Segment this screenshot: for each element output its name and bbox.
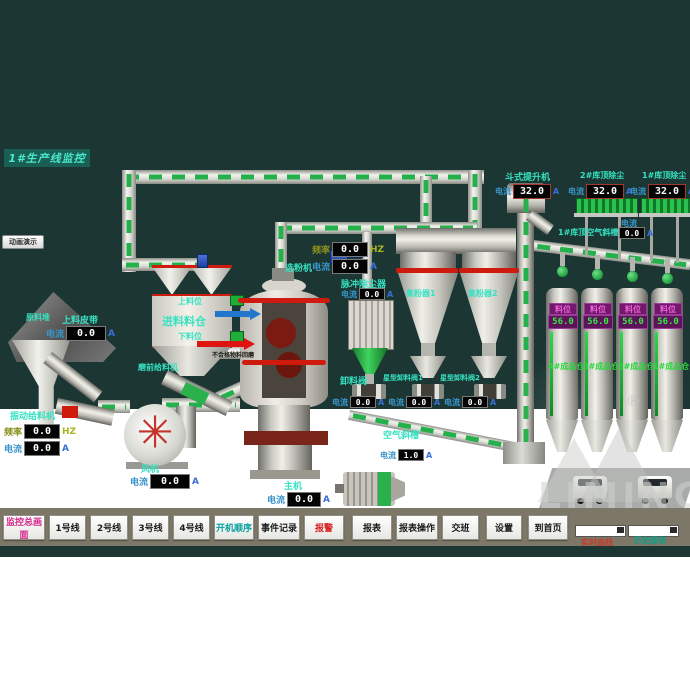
freq-value: 0.0 — [24, 424, 60, 439]
silo-inlet-valve — [557, 266, 568, 277]
silo-level-bar — [620, 332, 623, 416]
hmi-screenshot: 1#生产线监控 动画演示 原料堆 上料皮带 电流 0.0 A 振动给料机 频率 … — [0, 0, 690, 690]
main-motor-band — [378, 472, 391, 506]
silo-level-value: 56.0 — [548, 315, 578, 329]
current-value: 0.0 — [24, 441, 60, 456]
leg — [676, 217, 679, 263]
cyclone-manifold — [396, 228, 516, 254]
star-valve1-label: 星型卸料阀1 — [383, 373, 423, 383]
toolbar-button-shift-change[interactable]: 交班 — [442, 515, 479, 540]
realtime-curve-select[interactable] — [575, 525, 626, 537]
stem — [665, 259, 670, 273]
mill-roller — [266, 318, 296, 348]
current-label: 电流 — [388, 397, 404, 408]
unit-a: A — [108, 329, 115, 339]
mill-pedestal — [258, 445, 312, 471]
mill-foot — [250, 470, 320, 479]
cyclone2-label: 集粉器2 — [468, 288, 498, 299]
silo-level-label: 料位 — [549, 303, 577, 315]
freq-value: 0.0 — [332, 242, 368, 257]
toolbar-button-line2[interactable]: 2号线 — [90, 515, 128, 540]
discharge-valve-label: 卸料阀 — [340, 374, 367, 387]
material-pile-label: 原料堆 — [26, 312, 50, 323]
unit-a: A — [434, 398, 440, 407]
main-motor-shaft — [335, 484, 344, 493]
toolbar-button-alarm[interactable]: 报警 — [304, 515, 344, 540]
unit-a: A — [387, 290, 393, 299]
collector-base — [574, 213, 638, 217]
silo-inlet-valve — [627, 271, 638, 282]
stem — [482, 343, 496, 356]
leg — [650, 217, 653, 261]
truck — [573, 476, 607, 504]
current-value: 0.0 — [332, 259, 368, 274]
current-value: 0.0 — [150, 474, 190, 489]
silo-level-bar — [655, 332, 658, 416]
bin-rim — [152, 265, 232, 268]
silo-level-bar — [550, 332, 553, 416]
unit-a: A — [378, 398, 384, 407]
current-label: 电流 — [341, 289, 357, 300]
toolbar-button-startup-seq[interactable]: 开机顺序 — [214, 515, 254, 540]
mill-roller — [276, 352, 302, 378]
unit-a: A — [647, 229, 653, 238]
classifier-current-row: 电流 0.0 A — [312, 259, 377, 274]
mill-base-red — [244, 431, 328, 445]
vibrating-feeder-label: 振动给料机 — [10, 409, 55, 422]
unit-a: A — [370, 262, 377, 272]
silo-top-air-chute-current-row: 0.0 A — [619, 227, 653, 239]
silo-name: 3#成品仓 — [583, 361, 619, 372]
unit-a: A — [323, 495, 330, 505]
silo-level-value: 56.0 — [618, 315, 648, 329]
current-label: 电流 — [568, 186, 584, 197]
air-chute-label: 空气斜槽 — [383, 428, 419, 441]
current-label: 电流 — [130, 475, 148, 488]
silo-level-value: 56.0 — [583, 315, 613, 329]
main-drive-current-row: 电流 0.0 A — [267, 492, 330, 507]
current-value: 0.0 — [359, 288, 385, 300]
current-label: 电流 — [630, 186, 646, 197]
current-label: 电流 — [4, 442, 22, 455]
current-value: 32.0 — [648, 184, 686, 199]
mill-cutaway — [262, 300, 306, 398]
star-valve1-current-row: 电流 0.0 A — [388, 396, 440, 408]
silo-inlet-valve — [592, 269, 603, 280]
current-value: 32.0 — [586, 184, 624, 199]
current-label: 电流 — [380, 450, 396, 461]
toolbar-button-overview[interactable]: 监控总画面 — [3, 515, 45, 540]
lower-level-label: 下料位 — [178, 331, 202, 342]
feed-bin-label: 进料料仓 — [162, 313, 206, 329]
unit-a: A — [62, 444, 69, 454]
current-value: 0.0 — [350, 396, 376, 408]
current-label: 电流 — [312, 260, 330, 273]
unit-a: A — [490, 398, 496, 407]
history-report-label: 历史报表 — [634, 535, 666, 546]
page-title: 1#生产线监控 — [4, 149, 90, 167]
air-chute-current-row: 电流 1.0 A — [380, 449, 432, 461]
main-drive-label: 主机 — [284, 479, 302, 492]
toolbar-button-report[interactable]: 报表 — [352, 515, 392, 540]
star-valve2-label: 星型卸料阀2 — [440, 373, 480, 383]
silo-level-label: 料位 — [654, 303, 682, 315]
stem — [421, 343, 435, 356]
mill-red-ring — [238, 298, 330, 303]
silo-inlet-valve — [662, 273, 673, 284]
toolbar-button-home[interactable]: 到首页 — [528, 515, 568, 540]
animation-demo-button[interactable]: 动画演示 — [2, 235, 44, 249]
vibrating-feeder-freq-row: 频率 0.0 HZ — [4, 424, 76, 439]
pulse-filter-body — [348, 300, 394, 350]
unit-a: A — [192, 477, 199, 487]
freq-label: 频率 — [312, 243, 330, 256]
silo-top-air-chute-label: 1#库顶空气斜槽 — [558, 227, 618, 238]
silo-name: 2#成品仓 — [618, 361, 654, 372]
feed-belt-current-row: 电流 0.0 A — [46, 326, 115, 341]
silo1-dust-label: 1#库顶除尘 — [642, 170, 686, 181]
unit-hz: HZ — [370, 245, 384, 255]
conveyor-end — [62, 406, 78, 418]
silo-level-bar — [585, 332, 588, 416]
fan-current-row: 电流 0.0 A — [130, 474, 199, 489]
upper-level-label: 上料位 — [178, 296, 202, 307]
current-label: 电流 — [332, 397, 348, 408]
current-value: 0.0 — [619, 227, 645, 239]
toolbar-button-report-ops[interactable]: 报表操作 — [396, 515, 438, 540]
truck — [638, 476, 672, 504]
toolbar-button-settings[interactable]: 设置 — [486, 515, 522, 540]
inlet-arrow-blue — [215, 308, 261, 320]
silo-level-value: 56.0 — [653, 315, 683, 329]
silo2-dust-current-row: 电流 32.0 A — [568, 184, 632, 199]
current-value: 0.0 — [406, 396, 432, 408]
realtime-curve-label: 实时曲线 — [581, 537, 613, 548]
mill-neck — [258, 405, 310, 433]
cyclone1-label: 集粉器1 — [406, 288, 436, 299]
silo1-dust-current-row: 电流 32.0 A — [630, 184, 690, 199]
current-label: 电流 — [495, 186, 511, 197]
current-label: 电流 — [444, 397, 460, 408]
return-arrow-red — [197, 338, 255, 350]
mill-red-ring — [242, 360, 326, 365]
silo-name: 4#成品仓 — [548, 361, 584, 372]
pulse-filter-current-row: 电流 0.0 A — [341, 288, 393, 300]
reject-return-label: 不合格物料回磨 — [212, 350, 254, 359]
bucket-elevator-current-row: 电流 32.0 A — [495, 184, 559, 199]
current-value: 0.0 — [462, 396, 488, 408]
current-label: 电流 — [46, 327, 64, 340]
cyclone1-rim — [396, 268, 458, 273]
pipe — [122, 170, 136, 272]
classifier-freq-row: 频率 0.0 HZ — [312, 242, 384, 257]
classifier-label: 选粉机 — [285, 261, 312, 274]
unit-a: A — [426, 451, 432, 460]
air-chute — [348, 410, 525, 454]
current-value: 32.0 — [513, 184, 551, 199]
silo-funnel — [651, 420, 683, 452]
current-label: 电流 — [267, 493, 285, 506]
freq-label: 频率 — [4, 425, 22, 438]
current-value: 0.0 — [287, 492, 321, 507]
silo-name: 1#成品仓 — [653, 361, 689, 372]
stem — [595, 255, 600, 269]
current-value: 1.0 — [398, 449, 424, 461]
bin-sensor — [197, 254, 208, 268]
pre-mill-feeder-label: 磨前给料机 — [138, 362, 178, 373]
unit-hz: HZ — [62, 427, 76, 437]
discharge-valve-current-row: 电流 0.0 A — [332, 396, 384, 408]
pipe — [420, 176, 432, 226]
main-motor-cap — [391, 476, 405, 502]
stem — [630, 257, 635, 271]
unit-a: A — [553, 187, 559, 196]
feed-belt-label: 上料皮带 — [62, 313, 98, 326]
star-valve2-current-row: 电流 0.0 A — [444, 396, 496, 408]
silo-level-label: 料位 — [619, 303, 647, 315]
silo-level-label: 料位 — [584, 303, 612, 315]
toolbar-button-line1[interactable]: 1号线 — [49, 515, 86, 540]
toolbar-button-event-log[interactable]: 事件记录 — [258, 515, 300, 540]
collector-base — [639, 213, 690, 217]
stem — [560, 252, 565, 266]
bucket-elevator-label: 斗式提升机 — [505, 170, 550, 183]
toolbar-button-line4[interactable]: 4号线 — [173, 515, 210, 540]
toolbar-button-line3[interactable]: 3号线 — [132, 515, 169, 540]
fan-impeller — [124, 404, 186, 466]
current-value: 0.0 — [66, 326, 106, 341]
cyclone2-rim — [459, 268, 519, 273]
vibrating-feeder-current-row: 电流 0.0 A — [4, 441, 69, 456]
silo2-dust-label: 2#库顶除尘 — [580, 170, 624, 181]
